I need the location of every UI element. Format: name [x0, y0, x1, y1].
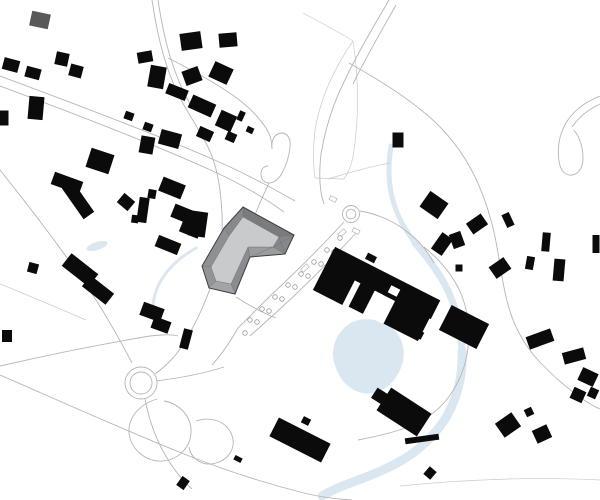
site-plan-svg	[0, 0, 600, 500]
site-plan	[0, 0, 600, 500]
featured-building	[202, 207, 294, 294]
